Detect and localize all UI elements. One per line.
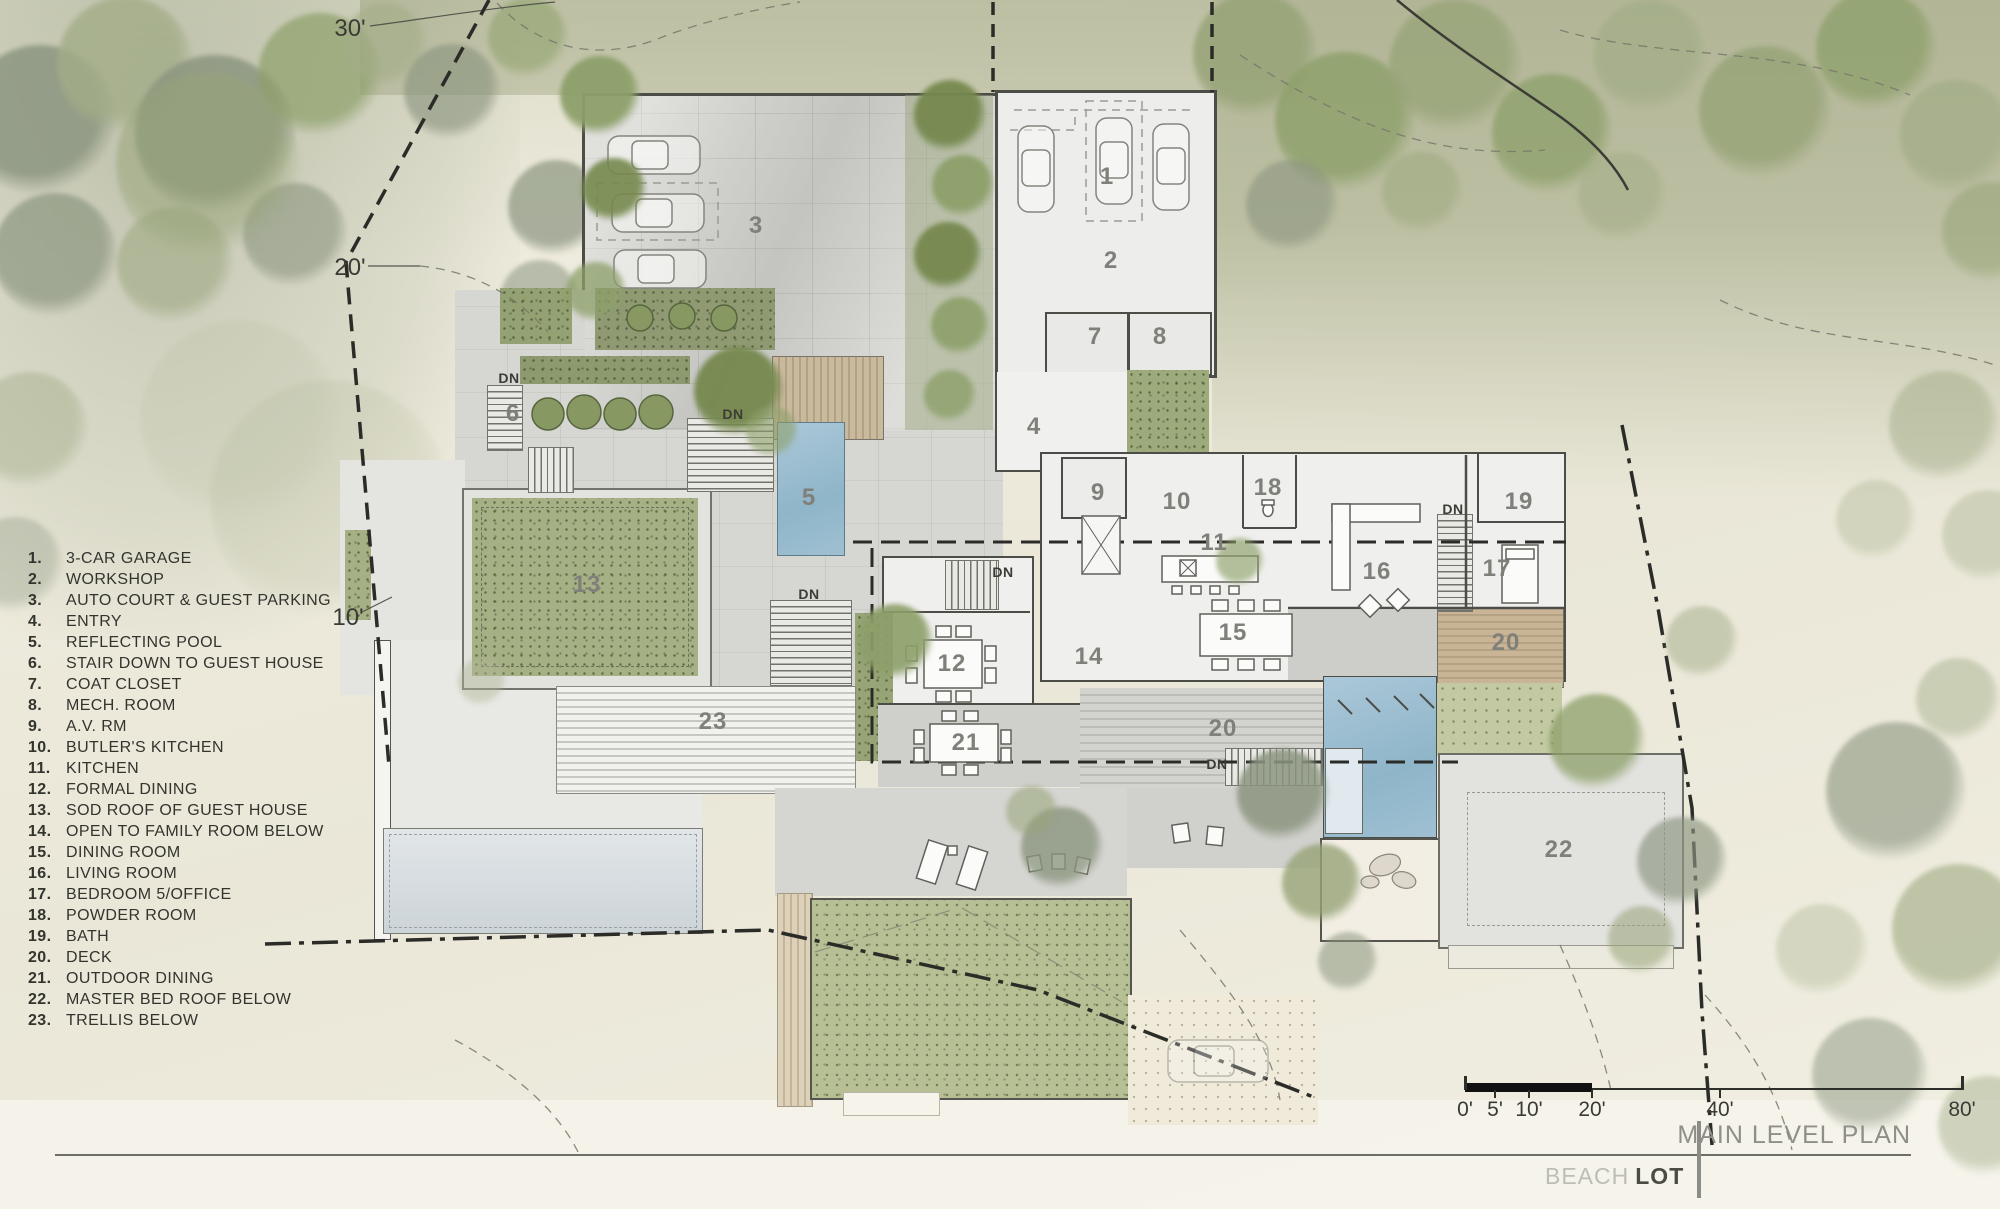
legend-item: 7. COAT CLOSET	[28, 674, 331, 695]
legend-item-number: 4.	[28, 611, 66, 632]
scale-tick-label: 0'	[1457, 1098, 1473, 1122]
legend-item-number: 22.	[28, 989, 66, 1010]
legend-item-label: TRELLIS BELOW	[66, 1010, 331, 1031]
legend-item-number: 2.	[28, 569, 66, 590]
legend-item-label: KITCHEN	[66, 758, 331, 779]
legend-item: 6. STAIR DOWN TO GUEST HOUSE	[28, 653, 331, 674]
stair-dn-label: DN	[722, 406, 743, 422]
legend-item: 17. BEDROOM 5/OFFICE	[28, 884, 331, 905]
legend-item: 2. WORKSHOP	[28, 569, 331, 590]
legend-item: 23. TRELLIS BELOW	[28, 1010, 331, 1031]
legend-item-label: OUTDOOR DINING	[66, 968, 331, 989]
legend-item-number: 3.	[28, 590, 66, 611]
legend-item-number: 21.	[28, 968, 66, 989]
scale-tick-label: 40'	[1706, 1098, 1733, 1122]
stair-dn-label: DN	[1442, 501, 1463, 517]
legend-item-number: 19.	[28, 926, 66, 947]
legend-item-number: 10.	[28, 737, 66, 758]
scale-tick-label: 20'	[1578, 1098, 1605, 1122]
legend-item: 12. FORMAL DINING	[28, 779, 331, 800]
scale-end-tick	[1464, 1076, 1467, 1090]
legend-item-number: 15.	[28, 842, 66, 863]
legend-item-number: 12.	[28, 779, 66, 800]
stair-dn-label: DN	[798, 586, 819, 602]
legend-item-number: 5.	[28, 632, 66, 653]
legend-item-number: 23.	[28, 1010, 66, 1031]
legend-item-label: LIVING ROOM	[66, 863, 331, 884]
legend-item-label: WORKSHOP	[66, 569, 331, 590]
legend-item-label: REFLECTING POOL	[66, 632, 331, 653]
scale-tick-mark	[1591, 1090, 1593, 1098]
legend-item-label: COAT CLOSET	[66, 674, 331, 695]
plan-legend: 1. 3-CAR GARAGE 2. WORKSHOP 3. AUTO COUR…	[28, 548, 331, 1031]
legend-item-label: BUTLER'S KITCHEN	[66, 737, 331, 758]
legend-item: 18. POWDER ROOM	[28, 905, 331, 926]
legend-item-label: OPEN TO FAMILY ROOM BELOW	[66, 821, 331, 842]
legend-item: 9. A.V. RM	[28, 716, 331, 737]
legend-item-label: DECK	[66, 947, 331, 968]
legend-item: 14. OPEN TO FAMILY ROOM BELOW	[28, 821, 331, 842]
legend-item: 3. AUTO COURT & GUEST PARKING	[28, 590, 331, 611]
legend-item-label: A.V. RM	[66, 716, 331, 737]
legend-item-label: 3-CAR GARAGE	[66, 548, 331, 569]
legend-item-number: 16.	[28, 863, 66, 884]
legend-item: 8. MECH. ROOM	[28, 695, 331, 716]
legend-item-number: 14.	[28, 821, 66, 842]
legend-item-number: 8.	[28, 695, 66, 716]
stair-dn-label: DN	[992, 564, 1013, 580]
scale-tick-mark	[1494, 1090, 1496, 1098]
legend-item: 19. BATH	[28, 926, 331, 947]
site-plan-canvas: 30'20'10' 123456789101112131415161718192…	[0, 0, 2000, 1209]
title-rule	[55, 1154, 1911, 1156]
legend-item-number: 6.	[28, 653, 66, 674]
project-name-light: BEACH	[1545, 1163, 1629, 1189]
stair-dn-label: DN	[498, 370, 519, 386]
legend-item-number: 13.	[28, 800, 66, 821]
scale-tick-label: 10'	[1515, 1098, 1542, 1122]
legend-item: 16. LIVING ROOM	[28, 863, 331, 884]
legend-item: 10. BUTLER'S KITCHEN	[28, 737, 331, 758]
legend-item-label: DINING ROOM	[66, 842, 331, 863]
legend-item-label: MECH. ROOM	[66, 695, 331, 716]
legend-item-label: POWDER ROOM	[66, 905, 331, 926]
scale-tick-mark	[1719, 1090, 1721, 1098]
legend-item-label: BEDROOM 5/OFFICE	[66, 884, 331, 905]
legend-item-number: 1.	[28, 548, 66, 569]
legend-item-label: STAIR DOWN TO GUEST HOUSE	[66, 653, 331, 674]
legend-item-label: FORMAL DINING	[66, 779, 331, 800]
legend-item-label: AUTO COURT & GUEST PARKING	[66, 590, 331, 611]
legend-item-number: 9.	[28, 716, 66, 737]
legend-item: 21. OUTDOOR DINING	[28, 968, 331, 989]
legend-item-number: 11.	[28, 758, 66, 779]
scale-tick-mark	[1528, 1090, 1530, 1098]
legend-item: 4. ENTRY	[28, 611, 331, 632]
sheet-title: MAIN LEVEL PLAN	[1677, 1121, 1911, 1150]
legend-item-number: 20.	[28, 947, 66, 968]
scale-end-tick	[1961, 1076, 1964, 1090]
legend-item-number: 17.	[28, 884, 66, 905]
legend-item: 1. 3-CAR GARAGE	[28, 548, 331, 569]
legend-item-number: 18.	[28, 905, 66, 926]
project-name: BEACHLOT	[1545, 1163, 1684, 1190]
scale-tick-label: 5'	[1487, 1098, 1503, 1122]
legend-item: 13. SOD ROOF OF GUEST HOUSE	[28, 800, 331, 821]
project-name-bold: LOT	[1635, 1163, 1684, 1189]
legend-item-label: BATH	[66, 926, 331, 947]
legend-item: 5. REFLECTING POOL	[28, 632, 331, 653]
legend-item: 20. DECK	[28, 947, 331, 968]
legend-item-label: ENTRY	[66, 611, 331, 632]
legend-item-label: MASTER BED ROOF BELOW	[66, 989, 331, 1010]
legend-item: 11. KITCHEN	[28, 758, 331, 779]
legend-item-label: SOD ROOF OF GUEST HOUSE	[66, 800, 331, 821]
legend-item: 15. DINING ROOM	[28, 842, 331, 863]
scale-tick-label: 80'	[1948, 1098, 1975, 1122]
legend-item-number: 7.	[28, 674, 66, 695]
stair-dn-label: DN	[1206, 756, 1227, 772]
legend-item: 22. MASTER BED ROOF BELOW	[28, 989, 331, 1010]
